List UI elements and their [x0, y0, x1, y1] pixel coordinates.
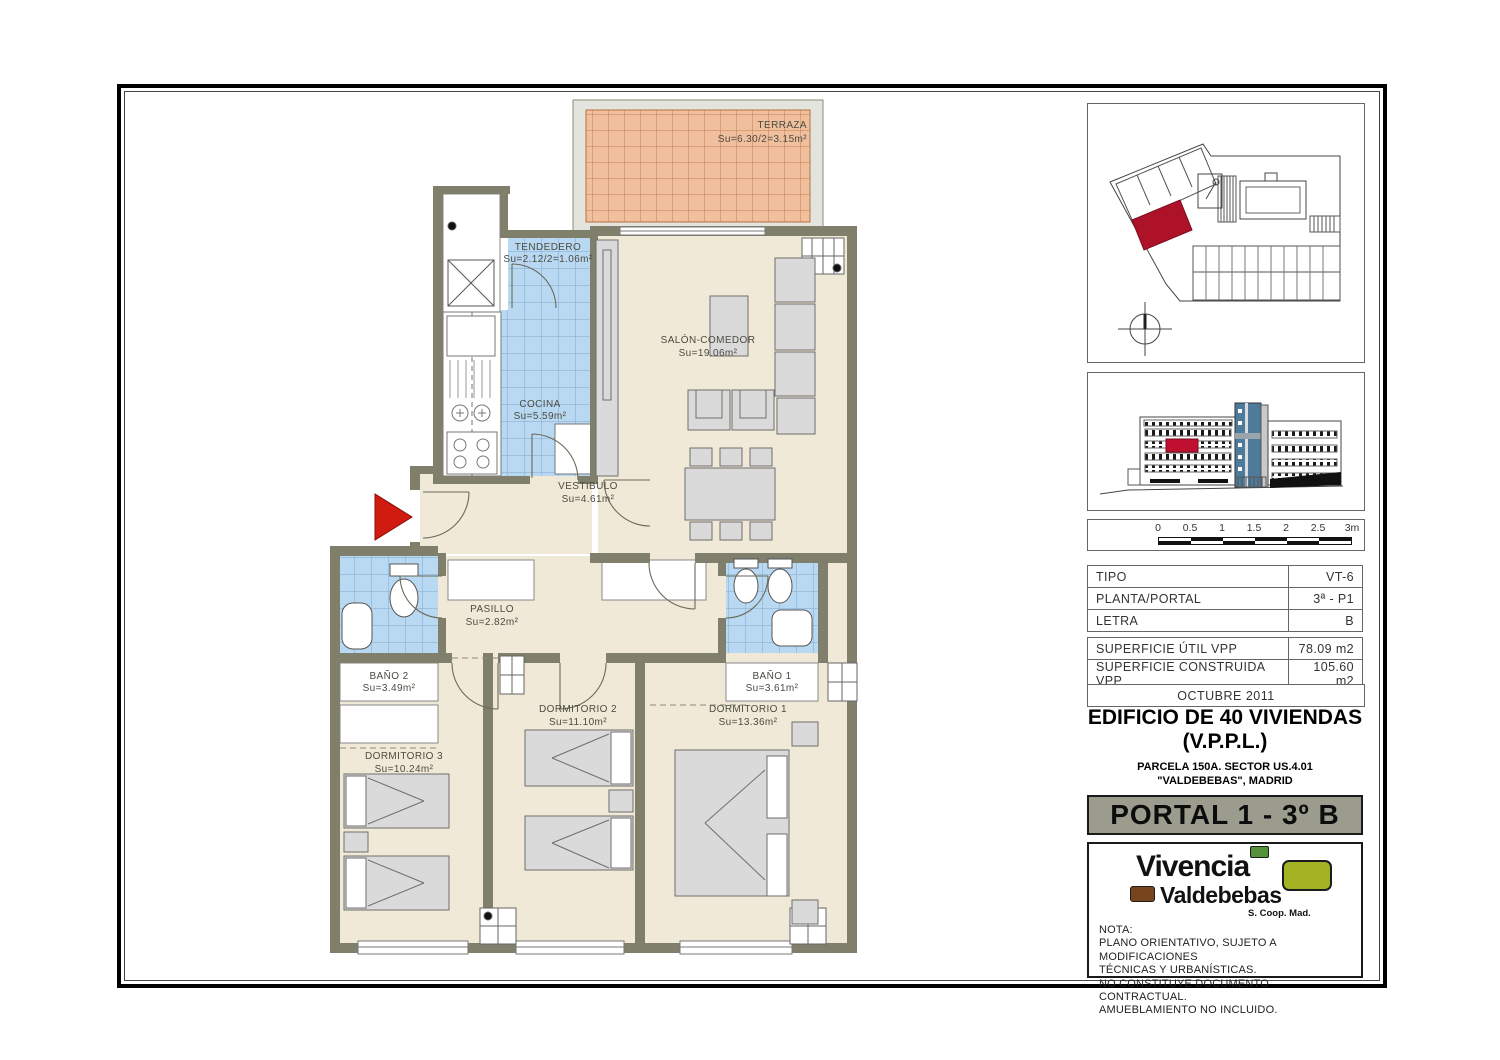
- spec-value: B: [1288, 610, 1362, 632]
- room-area: Su=13.36m²: [719, 717, 778, 728]
- closet-bath2: [340, 705, 438, 743]
- room-label: DORMITORIO 3: [365, 751, 443, 762]
- wardrobe: [596, 240, 618, 476]
- surface-table: SUPERFICIE ÚTIL VPP 78.09 m2 SUPERFICIE …: [1087, 637, 1363, 689]
- room-label: BAÑO 2: [369, 669, 408, 682]
- scale-tick-label: 1.5: [1247, 522, 1262, 534]
- sofa: [775, 258, 815, 302]
- scale-tick-label: 0: [1155, 522, 1161, 534]
- scale-tick-label: 0.5: [1183, 522, 1198, 534]
- room-label: BAÑO 1: [752, 669, 791, 682]
- room-label: TERRAZA: [758, 120, 807, 131]
- project-subtitle: PARCELA 150A. SECTOR US.4.01 "VALDEBEBAS…: [1087, 760, 1363, 789]
- nota-line: NOTA:: [1099, 924, 1355, 937]
- bidet-icon: [768, 569, 792, 603]
- fridge: [555, 424, 591, 474]
- stairs: [1218, 176, 1340, 232]
- scale-tick-label: 3m: [1345, 522, 1360, 534]
- armchair: [732, 390, 774, 430]
- spec-label: PLANTA/PORTAL: [1088, 588, 1289, 610]
- spec-label: TIPO: [1088, 566, 1289, 588]
- room-label: SALÓN-COMEDOR: [661, 333, 756, 346]
- room-area: Su=11.10m²: [549, 717, 607, 728]
- hall-closet-left: [448, 560, 534, 600]
- date-box: OCTUBRE 2011: [1087, 684, 1365, 707]
- room-area: Su=19.06m²: [679, 348, 738, 359]
- room-area: Su=10.24m²: [375, 764, 434, 775]
- terrace: TERRAZA Su=6.30/2=3.15m²: [573, 100, 823, 232]
- subtitle-line2: "VALDEBEBAS", MADRID: [1087, 774, 1363, 788]
- room-label: VESTIBULO: [558, 481, 618, 492]
- spec-value: 3ª - P1: [1288, 588, 1362, 610]
- room-label: DORMITORIO 1: [709, 704, 787, 715]
- nota-line: NO CONSTITUYE DOCUMENTO CONTRACTUAL.: [1099, 978, 1355, 1005]
- highlighted-floor: [1166, 439, 1198, 452]
- logo-green-square: [1250, 846, 1269, 858]
- roller-box-1: [480, 908, 516, 944]
- hall-shaft: [500, 656, 524, 694]
- spec-table: TIPO VT-6 PLANTA/PORTAL 3ª - P1 LETRA B: [1087, 565, 1363, 632]
- nightstand: [792, 722, 818, 746]
- room-area: Su=5.59m²: [514, 411, 567, 422]
- table-row: TIPO VT-6: [1088, 566, 1363, 588]
- logo-box: Vivencia Valdebebas S. Coop. Mad. NOTA: …: [1087, 842, 1363, 978]
- room-area: Su=4.61m²: [562, 494, 615, 505]
- table-row: LETRA B: [1088, 610, 1363, 632]
- bath1-label-box: [726, 663, 818, 701]
- project-title-line1: EDIFICIO DE 40 VIVIENDAS: [1087, 706, 1363, 730]
- nota-line: AMUEBLAMIENTO NO INCLUIDO.: [1099, 1004, 1355, 1017]
- elevation-panel: [1087, 372, 1365, 511]
- toilet-icon: [390, 579, 418, 617]
- table-row: SUPERFICIE ÚTIL VPP 78.09 m2: [1088, 638, 1363, 660]
- table-row: PLANTA/PORTAL 3ª - P1: [1088, 588, 1363, 610]
- project-title: EDIFICIO DE 40 VIVIENDAS (V.P.P.L.): [1087, 706, 1363, 754]
- room-area: Su=6.30/2=3.15m²: [718, 134, 808, 145]
- washbasin-icon: [772, 610, 812, 646]
- vivencia-logo: Vivencia Valdebebas S. Coop. Mad.: [1100, 848, 1350, 920]
- elevation-figure: [1088, 373, 1362, 508]
- corner-seat: [777, 398, 815, 434]
- room-label: COCINA: [519, 399, 560, 410]
- floor-plan: TERRAZA Su=6.30/2=3.15m²: [320, 98, 880, 955]
- logo-word-valdebebas: Valdebebas: [1160, 882, 1282, 909]
- dining-table: [685, 468, 775, 520]
- room-area: Su=3.49m²: [363, 683, 416, 694]
- nightstand: [792, 900, 818, 924]
- nota-block: NOTA: PLANO ORIENTATIVO, SUJETO A MODIFI…: [1099, 924, 1355, 1018]
- logo-brown-square: [1130, 886, 1155, 902]
- logo-olive-square: [1282, 860, 1332, 891]
- project-title-line2: (V.P.P.L.): [1087, 730, 1363, 754]
- logo-word-vivencia: Vivencia: [1136, 850, 1249, 884]
- cooktop-icon: [447, 432, 497, 474]
- coffee-table: [710, 296, 748, 356]
- surface-value: 78.09 m2: [1288, 638, 1362, 660]
- nota-line: TÉCNICAS Y URBANÍSTICAS.: [1099, 964, 1355, 977]
- room-label: DORMITORIO 2: [539, 704, 617, 715]
- toilet-icon: [734, 569, 758, 603]
- spec-label: LETRA: [1088, 610, 1289, 632]
- site-plan-panel: [1087, 103, 1365, 363]
- scale-bar: 0 0.5 1 1.5 2 2.5 3m: [1087, 519, 1365, 551]
- entrance-arrow-icon: [375, 494, 412, 540]
- nota-line: PLANO ORIENTATIVO, SUJETO A MODIFICACION…: [1099, 937, 1355, 964]
- scale-tick-label: 2: [1283, 522, 1289, 534]
- site-plan-figure: [1088, 104, 1362, 360]
- scale-tick-label: 1: [1219, 522, 1225, 534]
- armchair: [688, 390, 730, 430]
- compass-icon: [1118, 302, 1172, 356]
- scale-tick-label: 2.5: [1311, 522, 1326, 534]
- room-label: TENDEDERO: [515, 242, 581, 253]
- spec-value: VT-6: [1288, 566, 1362, 588]
- ext-shaft-right: [828, 663, 857, 701]
- nightstand: [609, 790, 633, 812]
- nightstand: [344, 832, 368, 852]
- logo-coop-text: S. Coop. Mad.: [1248, 908, 1311, 919]
- room-area: Su=2.12/2=1.06m²: [503, 254, 593, 265]
- highlighted-unit: [1132, 200, 1192, 250]
- sheet: TERRAZA Su=6.30/2=3.15m²: [0, 0, 1500, 1060]
- subtitle-line1: PARCELA 150A. SECTOR US.4.01: [1087, 760, 1363, 774]
- bath2-label-box: [340, 663, 438, 701]
- washbasin-icon: [342, 603, 372, 649]
- surface-label: SUPERFICIE ÚTIL VPP: [1088, 638, 1289, 660]
- room-area: Su=2.82m²: [466, 617, 519, 628]
- scale-labels: 0 0.5 1 1.5 2 2.5 3m: [1158, 522, 1350, 534]
- portal-banner: PORTAL 1 - 3º B: [1087, 795, 1363, 835]
- room-area: Su=3.61m²: [746, 683, 799, 694]
- scale-bar-graphic: [1158, 537, 1352, 545]
- hall-closet-right: [602, 560, 706, 600]
- room-label: PASILLO: [470, 604, 514, 615]
